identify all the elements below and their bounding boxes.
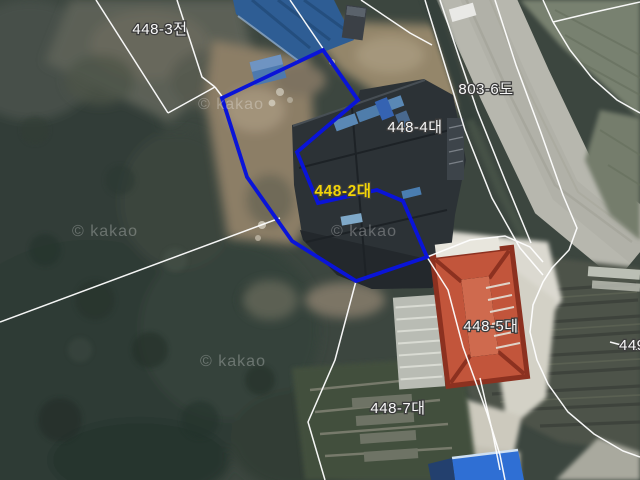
map-canvas[interactable]: © kakao © kakao © kakao © kakao 448-3전 8…	[0, 0, 640, 480]
parcel-label-449: 449	[619, 337, 640, 354]
parcel-label-448-3: 448-3전	[132, 21, 187, 38]
map-viewport[interactable]: © kakao © kakao © kakao © kakao 448-3전 8…	[0, 0, 640, 480]
parcel-label-803-6: 803-6도	[458, 81, 513, 98]
kakao-watermark: © kakao	[200, 353, 266, 370]
red-roof-building	[431, 235, 528, 386]
kakao-watermark: © kakao	[72, 223, 138, 240]
parcel-label-448-5: 448-5대	[463, 318, 518, 335]
kakao-watermark: © kakao	[331, 223, 397, 240]
parcel-label-448-7: 448-7대	[370, 400, 425, 417]
parcel-label-448-4: 448-4대	[387, 119, 442, 136]
parcel-label-448-2-selected: 448-2대	[315, 182, 372, 200]
kakao-watermark: © kakao	[198, 96, 264, 113]
